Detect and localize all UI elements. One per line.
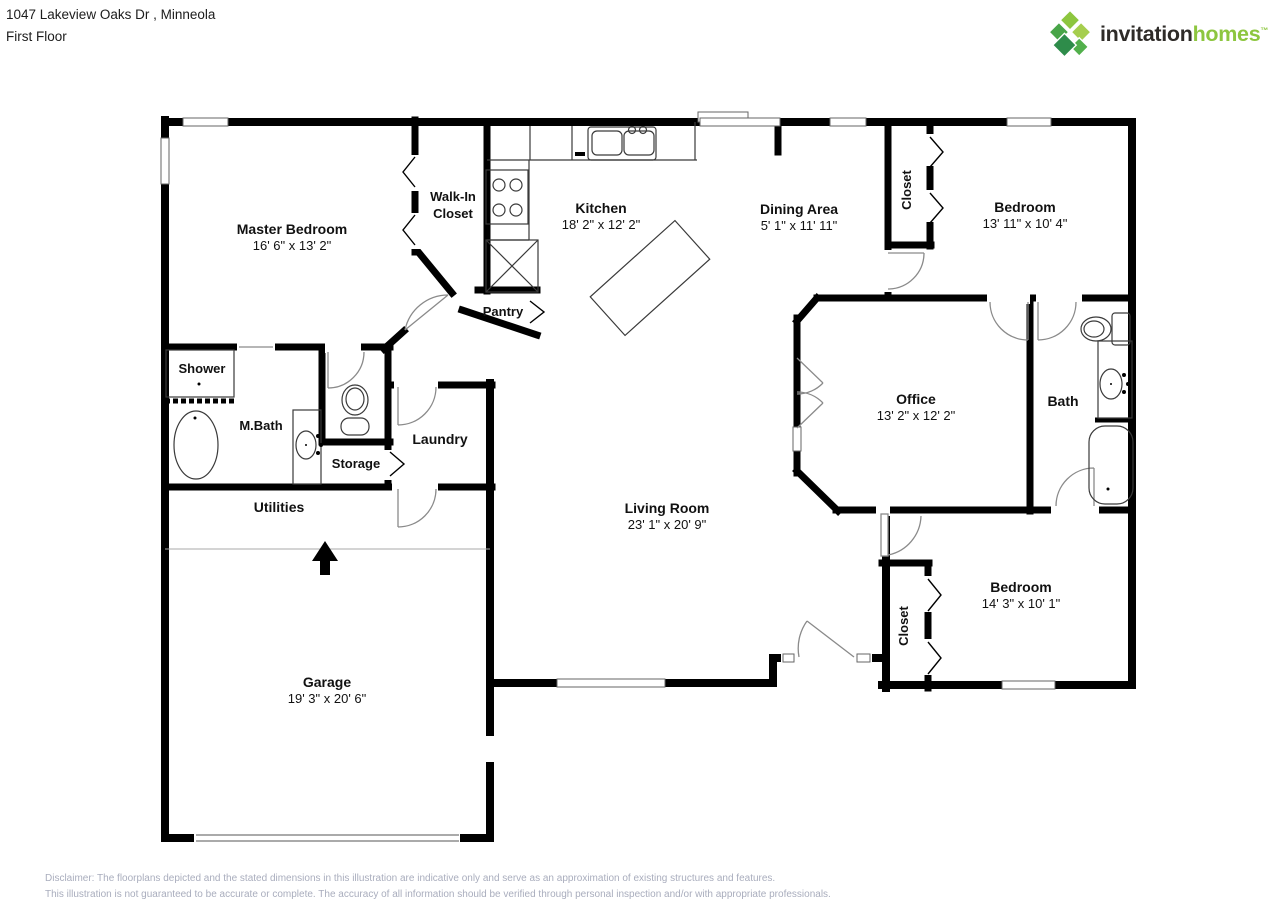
room-dims-living-room: 23' 1" x 20' 9" (628, 517, 707, 532)
window (183, 118, 228, 126)
room-label-utilities: Utilities (254, 499, 305, 515)
pantry-opening (530, 301, 544, 323)
sidelight-window (783, 654, 794, 662)
window (557, 679, 665, 687)
disclaimer-line-2: This illustration is not guaranteed to b… (45, 887, 831, 902)
room-label-kitchen: Kitchen (575, 200, 626, 216)
room-dims-kitchen: 18' 2" x 12' 2" (562, 217, 641, 232)
room-label-master-bedroom: Master Bedroom (237, 221, 347, 237)
bath-top-door (1038, 302, 1076, 340)
bath-toilet-icon (1081, 313, 1130, 345)
room-label-bedroom-top: Bedroom (994, 199, 1055, 215)
north-arrow-icon (312, 541, 338, 575)
door-swings (239, 253, 1094, 657)
room-label-pantry: Pantry (483, 304, 524, 319)
laundry-top-door (398, 387, 436, 425)
wc-toilet-icon (341, 385, 369, 435)
room-dims-office: 13' 2" x 12' 2" (877, 408, 956, 423)
room-labels: Master Bedroom 16' 6" x 13' 2" Walk-In C… (179, 169, 1079, 706)
stove-icon (486, 170, 528, 224)
disclaimer-line-1: Disclaimer: The floorplans depicted and … (45, 871, 831, 887)
room-label-closet-bottom: Closet (896, 605, 911, 645)
kitchen-island (590, 221, 710, 336)
bedroom-bottom-door (888, 516, 921, 555)
window (793, 427, 801, 451)
office-french-doors (797, 358, 823, 428)
bath-vanity-sink (1098, 341, 1132, 418)
opening-chevrons (390, 137, 943, 674)
room-dims-garage: 19' 3" x 20' 6" (288, 691, 367, 706)
bath-bottom-door (1056, 468, 1094, 506)
room-label-m-bath: M.Bath (239, 418, 282, 433)
window (830, 118, 866, 126)
kitchen-sink (588, 127, 656, 161)
window (1007, 118, 1051, 126)
room-label-bath: Bath (1047, 393, 1078, 409)
room-label-walk-in: Walk-In (430, 189, 476, 204)
master-bedroom-door (405, 295, 448, 330)
bathtub-icon (1089, 426, 1133, 504)
office-door (990, 302, 1028, 340)
room-dims-dining-area: 5' 1" x 11' 11" (761, 218, 838, 233)
pantry-cabinet (486, 240, 538, 292)
room-dims-master-bedroom: 16' 6" x 13' 2" (253, 238, 332, 253)
window (1002, 681, 1055, 689)
floorplan-svg: Master Bedroom 16' 6" x 13' 2" Walk-In C… (0, 0, 1280, 902)
room-label-bedroom-bottom: Bedroom (990, 579, 1051, 595)
bedroom-bottom-door-leaf (881, 514, 888, 556)
sidelight-window (857, 654, 870, 662)
room-label-closet-top: Closet (899, 169, 914, 209)
master-bathtub (174, 411, 218, 479)
window (700, 118, 780, 126)
room-label-laundry: Laundry (412, 431, 467, 447)
room-label-storage: Storage (332, 456, 380, 471)
dishwasher-mark (575, 152, 585, 156)
room-dims-bedroom-top: 13' 11" x 10' 4" (983, 216, 1068, 231)
room-label-living-room: Living Room (625, 500, 710, 516)
kitchen-side-counter (487, 160, 529, 240)
fixtures (166, 122, 1133, 504)
laundry-bottom-door (398, 489, 436, 527)
room-label-dining-area: Dining Area (760, 201, 838, 217)
room-label-walk-in-closet: Closet (433, 206, 473, 221)
room-dims-bedroom-bottom: 14' 3" x 10' 1" (982, 596, 1061, 611)
window (161, 138, 169, 184)
room-label-shower: Shower (179, 361, 226, 376)
room-label-office: Office (896, 391, 936, 407)
wc-door (328, 352, 364, 388)
disclaimer: Disclaimer: The floorplans depicted and … (45, 871, 831, 902)
room-label-garage: Garage (303, 674, 351, 690)
front-door (798, 621, 854, 657)
